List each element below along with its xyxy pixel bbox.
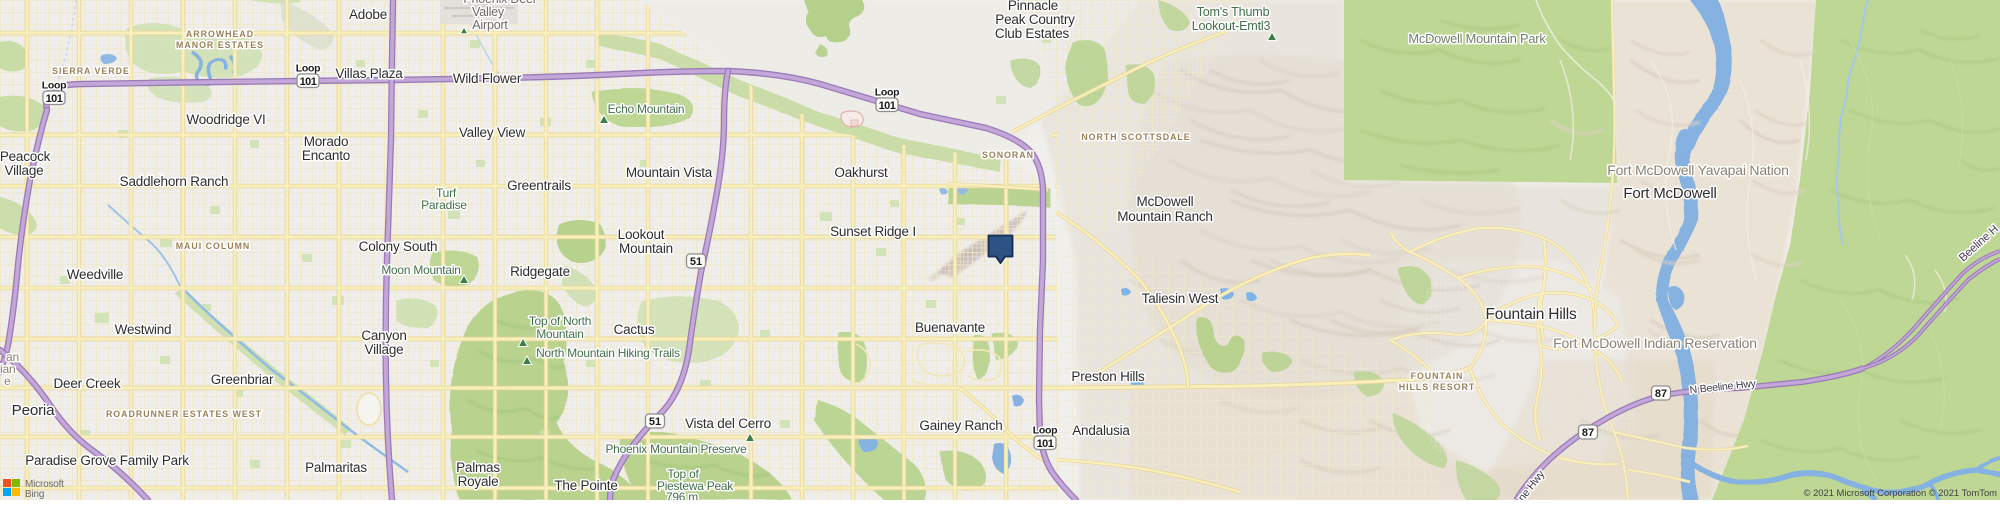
svg-text:Mountain Ranch: Mountain Ranch (1117, 209, 1213, 224)
svg-text:Phoenix Mountain Preserve: Phoenix Mountain Preserve (605, 442, 747, 456)
svg-text:Taliesin West: Taliesin West (1142, 291, 1219, 306)
svg-text:Vista del Cerro: Vista del Cerro (685, 416, 771, 431)
svg-text:Bing: Bing (25, 489, 44, 500)
svg-text:Woodridge VI: Woodridge VI (186, 112, 265, 127)
svg-text:Deer Creek: Deer Creek (53, 376, 120, 391)
svg-text:Mountain Vista: Mountain Vista (626, 165, 713, 180)
svg-text:ARROWHEAD: ARROWHEAD (186, 29, 254, 39)
svg-text:MAUI COLUMN: MAUI COLUMN (176, 241, 251, 251)
svg-text:Mountain: Mountain (619, 241, 673, 256)
svg-text:Moon Mountain: Moon Mountain (381, 263, 460, 277)
svg-text:Villas Plaza: Villas Plaza (335, 66, 403, 81)
svg-text:Airport: Airport (472, 18, 508, 32)
svg-text:Royale: Royale (458, 474, 499, 489)
svg-text:Palmas: Palmas (456, 460, 500, 475)
svg-text:HILLS RESORT: HILLS RESORT (1399, 382, 1476, 392)
svg-text:Loop: Loop (296, 63, 320, 75)
svg-text:Club Estates: Club Estates (995, 26, 1070, 41)
svg-text:Andalusia: Andalusia (1072, 423, 1130, 438)
svg-text:Fort McDowell Indian Reservati: Fort McDowell Indian Reservation (1553, 335, 1757, 351)
svg-text:McDowell: McDowell (1137, 194, 1194, 209)
svg-text:101: 101 (1037, 438, 1054, 450)
svg-text:MANOR ESTATES: MANOR ESTATES (176, 40, 264, 50)
svg-text:Cactus: Cactus (614, 322, 655, 337)
svg-text:Tom's Thumb: Tom's Thumb (1197, 5, 1270, 19)
svg-text:SIERRA VERDE: SIERRA VERDE (52, 66, 130, 76)
svg-text:Loop: Loop (42, 80, 66, 92)
svg-text:Sunset Ridge I: Sunset Ridge I (830, 224, 916, 239)
svg-text:Village: Village (365, 342, 404, 357)
svg-text:Ridgegate: Ridgegate (510, 264, 570, 279)
svg-text:Westwind: Westwind (115, 322, 172, 337)
svg-text:Wild Flower: Wild Flower (453, 71, 522, 86)
svg-text:796 m: 796 m (666, 490, 698, 500)
svg-text:51: 51 (690, 256, 702, 268)
svg-text:Top of North: Top of North (529, 314, 591, 328)
svg-text:Lookout-Emtl3: Lookout-Emtl3 (1192, 19, 1271, 33)
svg-text:Peoria: Peoria (12, 402, 55, 419)
svg-text:Paradise: Paradise (421, 198, 467, 212)
svg-text:Valley View: Valley View (459, 125, 526, 140)
svg-text:Peak Country: Peak Country (995, 12, 1075, 27)
svg-text:Mountain: Mountain (536, 327, 583, 341)
svg-text:Saddlehorn Ranch: Saddlehorn Ranch (120, 174, 229, 189)
svg-text:NORTH SCOTTSDALE: NORTH SCOTTSDALE (1081, 132, 1190, 142)
svg-text:e: e (4, 374, 11, 388)
svg-text:Fort McDowell Yavapai Nation: Fort McDowell Yavapai Nation (1607, 162, 1788, 178)
svg-text:Paradise Grove Family Park: Paradise Grove Family Park (25, 453, 189, 468)
svg-text:North Mountain Hiking Trails: North Mountain Hiking Trails (536, 346, 680, 360)
svg-text:ROADRUNNER ESTATES WEST: ROADRUNNER ESTATES WEST (106, 409, 262, 419)
svg-text:101: 101 (300, 76, 317, 88)
svg-text:Preston Hills: Preston Hills (1071, 369, 1145, 384)
svg-text:Greentrails: Greentrails (507, 178, 571, 193)
svg-text:Oakhurst: Oakhurst (834, 165, 888, 180)
svg-text:Fountain Hills: Fountain Hills (1485, 306, 1577, 323)
svg-text:101: 101 (879, 100, 896, 112)
svg-text:© 2021 Microsoft Corporation ©: © 2021 Microsoft Corporation © 2021 TomT… (1804, 487, 1998, 498)
svg-text:The Pointe: The Pointe (554, 478, 617, 493)
svg-text:Palmaritas: Palmaritas (305, 460, 367, 475)
svg-text:Adobe: Adobe (349, 7, 387, 22)
svg-text:McDowell Mountain Park: McDowell Mountain Park (1408, 31, 1546, 46)
svg-text:87: 87 (1582, 427, 1594, 439)
svg-text:Weedville: Weedville (67, 267, 123, 282)
svg-text:Valley: Valley (472, 5, 505, 19)
svg-text:Gainey Ranch: Gainey Ranch (919, 418, 1002, 433)
svg-text:Canyon: Canyon (361, 328, 406, 343)
svg-text:Loop: Loop (875, 87, 899, 99)
svg-text:87: 87 (1655, 388, 1667, 400)
svg-text:Loop: Loop (1033, 425, 1057, 437)
svg-text:Fort McDowell: Fort McDowell (1623, 185, 1716, 202)
svg-text:Peacock: Peacock (0, 149, 51, 164)
svg-text:Village: Village (5, 163, 44, 178)
svg-text:SONORAN: SONORAN (982, 150, 1034, 160)
svg-text:Echo Mountain: Echo Mountain (608, 102, 685, 116)
svg-text:FOUNTAIN: FOUNTAIN (1411, 371, 1464, 381)
svg-text:Colony South: Colony South (359, 239, 438, 254)
svg-text:101: 101 (46, 93, 63, 105)
svg-text:Lookout: Lookout (618, 227, 665, 242)
svg-text:51: 51 (649, 416, 661, 428)
svg-text:Buenavante: Buenavante (915, 320, 985, 335)
svg-text:Encanto: Encanto (302, 148, 350, 163)
svg-text:Greenbriar: Greenbriar (211, 372, 274, 387)
svg-text:Morado: Morado (304, 134, 349, 149)
